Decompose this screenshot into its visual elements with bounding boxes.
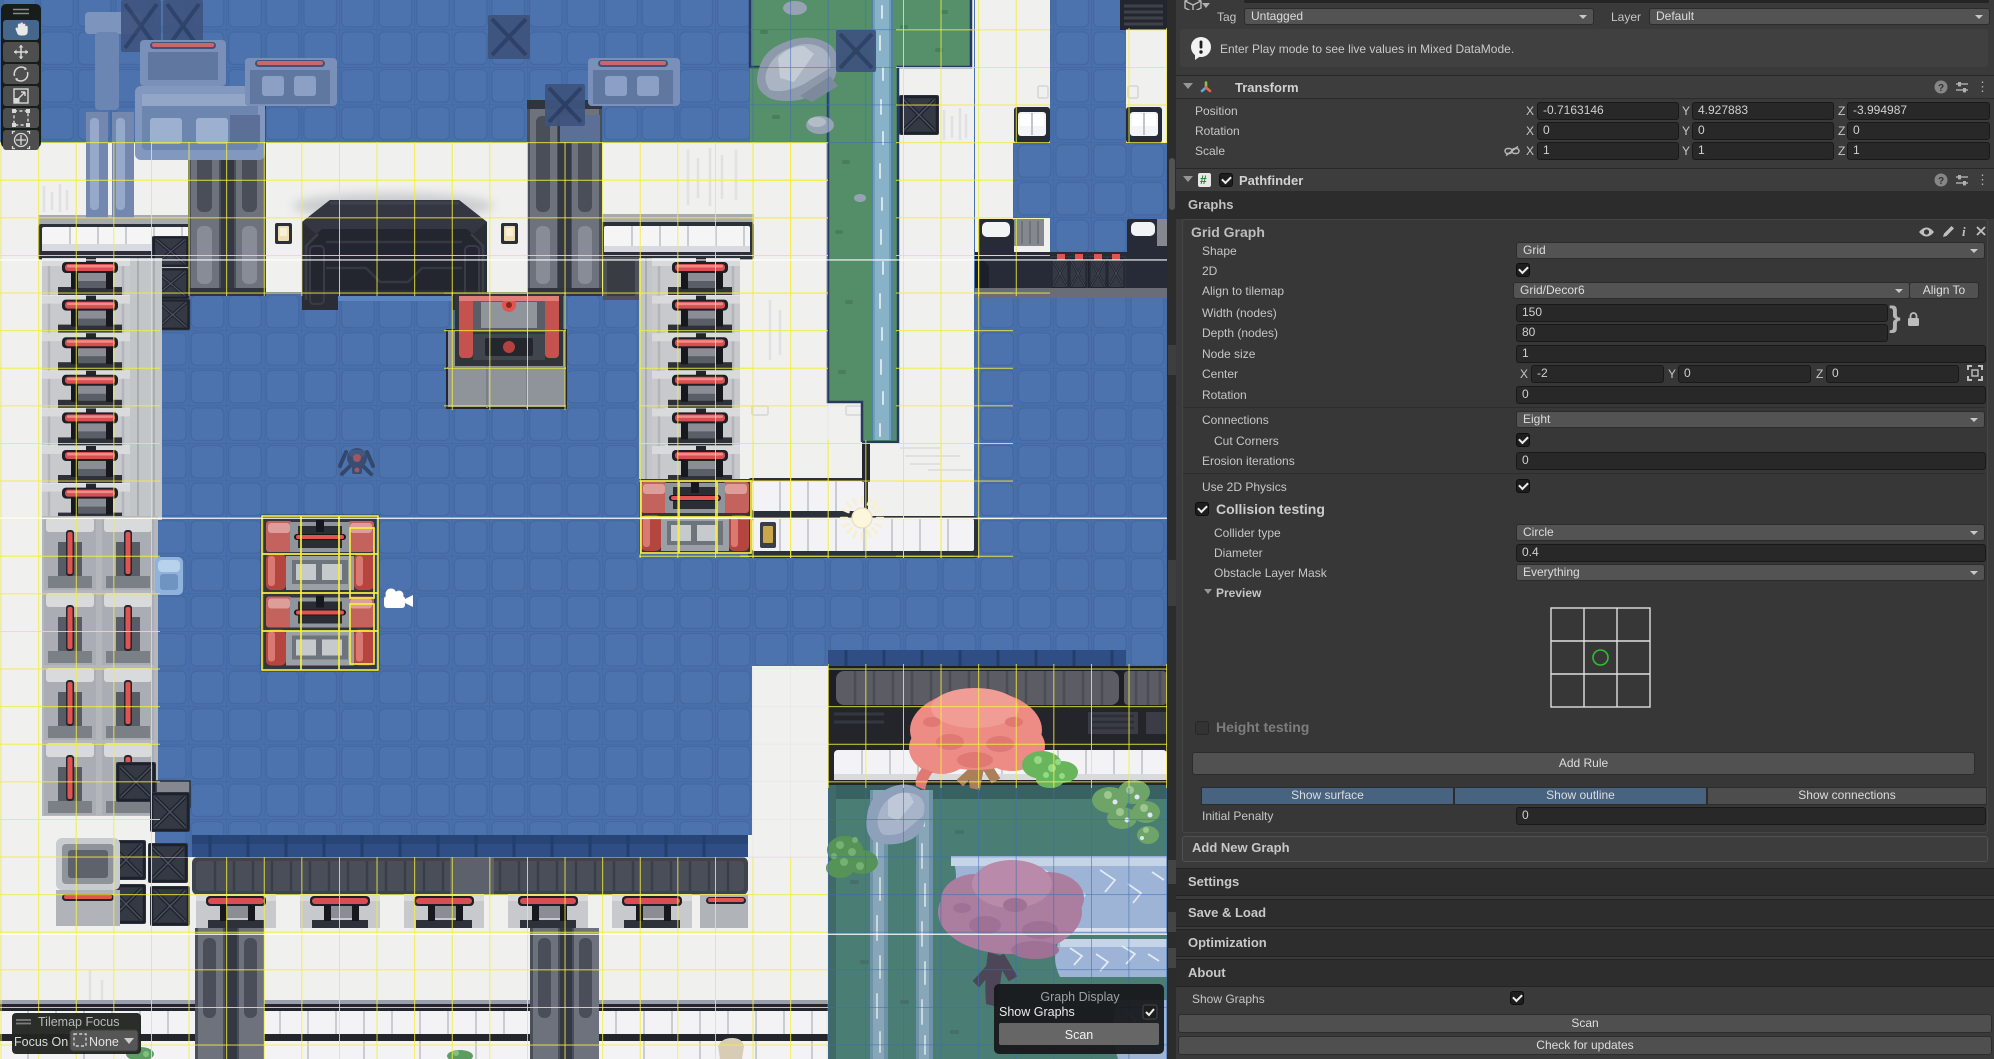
svg-text:None: None: [89, 1035, 119, 1049]
svg-text:Scan: Scan: [1065, 1028, 1094, 1042]
svg-text:Graph Display: Graph Display: [1040, 990, 1120, 1004]
svg-text:Show Graphs: Show Graphs: [999, 1005, 1075, 1019]
svg-text:Tilemap Focus: Tilemap Focus: [38, 1015, 120, 1029]
svg-text:?: ?: [1938, 83, 1944, 94]
svg-text:Focus On: Focus On: [14, 1035, 68, 1049]
svg-text:?: ?: [1938, 176, 1944, 187]
